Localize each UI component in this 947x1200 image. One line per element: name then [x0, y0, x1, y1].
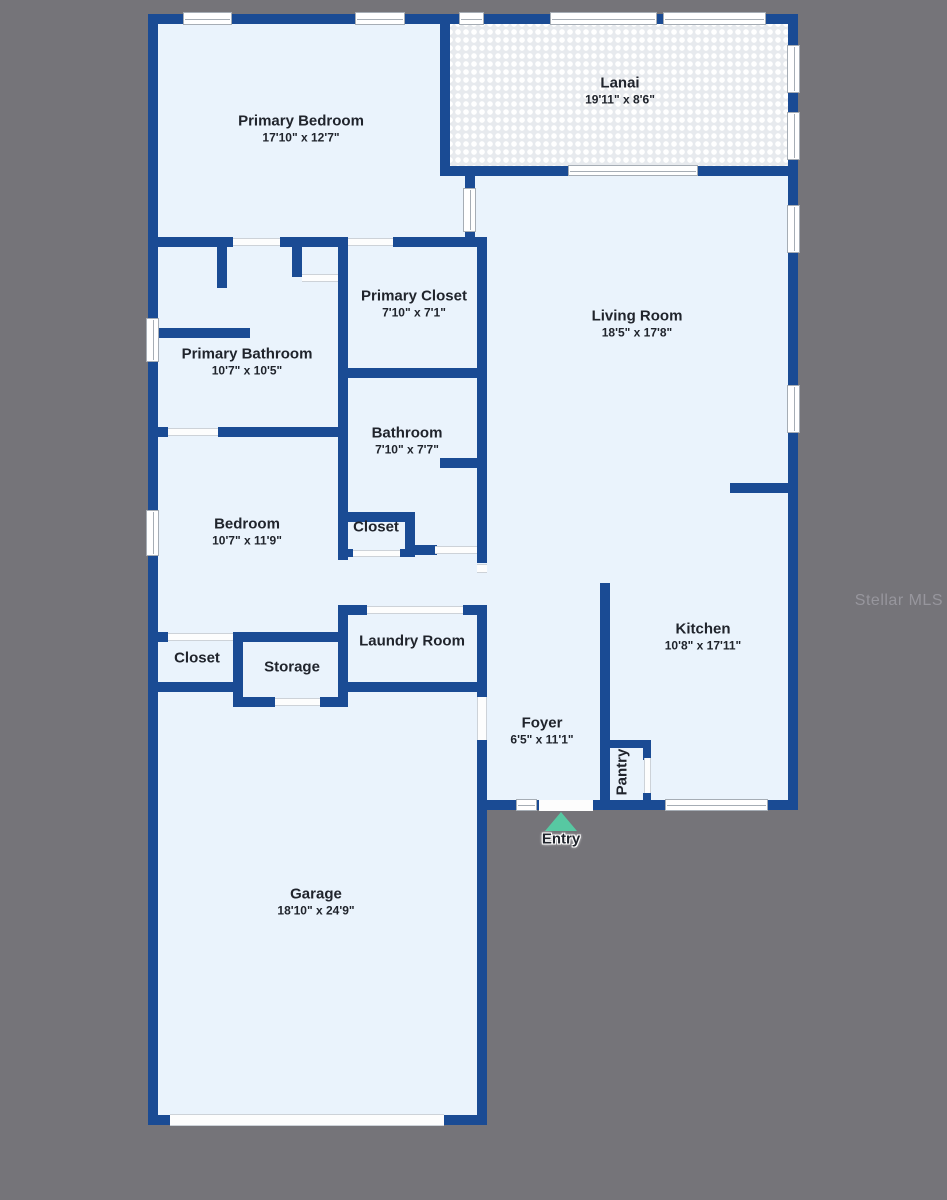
door-opening [367, 606, 463, 614]
wall [148, 632, 168, 642]
wall [338, 368, 487, 378]
room-name: Closet [353, 518, 399, 535]
room-label-storage: Storage [264, 658, 320, 675]
room-label-bedroom: Bedroom 10'7" x 11'9" [212, 515, 282, 548]
wall [148, 682, 233, 692]
door-opening [168, 428, 218, 436]
room-label-pantry: Pantry [613, 749, 630, 796]
room-label-living-room: Living Room 18'5" x 17'8" [592, 307, 683, 340]
door-opening [168, 633, 233, 641]
room-label-primary-bathroom: Primary Bathroom 10'7" x 10'5" [182, 345, 313, 378]
room-name: Foyer [510, 714, 573, 731]
wall [217, 247, 227, 288]
room-label-laundry: Laundry Room [359, 632, 465, 649]
room-label-closet-hall: Closet [174, 649, 220, 666]
window [787, 45, 800, 93]
wall [440, 14, 450, 176]
room-dimensions: 7'10" x 7'1" [361, 307, 467, 321]
room-name: Closet [174, 649, 220, 666]
room-name: Primary Bedroom [238, 112, 364, 129]
room-label-bathroom: Bathroom 7'10" x 7'7" [372, 424, 443, 457]
room-name: Living Room [592, 307, 683, 324]
room-label-lanai: Lanai 19'11" x 8'6" [585, 74, 655, 107]
room-dimensions: 18'5" x 17'8" [592, 327, 683, 341]
door-opening [477, 697, 487, 740]
wall [400, 549, 415, 557]
front-door-opening [539, 800, 593, 811]
wall [600, 740, 651, 748]
door-opening [477, 564, 487, 573]
room-name: Storage [264, 658, 320, 675]
room-name: Primary Closet [361, 287, 467, 304]
room-name: Bathroom [372, 424, 443, 441]
door-opening [302, 274, 338, 282]
wall [233, 697, 275, 707]
wall [696, 166, 798, 176]
garage-door-opening [170, 1114, 444, 1126]
wall [477, 240, 487, 563]
room-label-closet-bath: Closet [353, 518, 399, 535]
wall [440, 458, 487, 468]
wall [148, 237, 233, 247]
wall [440, 166, 570, 176]
room-dimensions: 17'10" x 12'7" [238, 132, 364, 146]
window [463, 188, 476, 232]
window [146, 510, 159, 556]
wall [643, 793, 651, 810]
window [663, 12, 766, 25]
room-label-primary-bedroom: Primary Bedroom 17'10" x 12'7" [238, 112, 364, 145]
window [355, 12, 405, 25]
wall [415, 545, 437, 555]
door-opening [233, 238, 280, 246]
window [146, 318, 159, 362]
window [459, 12, 484, 25]
window [787, 205, 800, 253]
room-dimensions: 10'7" x 10'5" [182, 365, 313, 379]
room-dimensions: 10'7" x 11'9" [212, 535, 282, 549]
window [550, 12, 657, 25]
wall [477, 682, 487, 1125]
window [183, 12, 232, 25]
stellar-mls-watermark: Stellar MLS [855, 592, 943, 610]
room-name: Kitchen [665, 620, 741, 637]
room-dimensions: 19'11" x 8'6" [585, 94, 655, 108]
room-name: Lanai [585, 74, 655, 91]
wall [477, 607, 487, 682]
door-opening [435, 546, 477, 554]
lanai-screen-opening [568, 165, 698, 176]
wall [320, 697, 345, 707]
door-opening [348, 238, 393, 246]
wall [338, 549, 353, 557]
window [665, 799, 768, 811]
wall [463, 605, 487, 615]
wall [600, 583, 610, 810]
wall [345, 682, 487, 692]
room-name: Garage [277, 885, 354, 902]
entry-arrow-icon [545, 812, 577, 831]
wall [148, 14, 158, 1125]
window [516, 799, 537, 811]
wall [233, 632, 345, 642]
window [787, 112, 800, 160]
room-label-garage: Garage 18'10" x 24'9" [277, 885, 354, 918]
room-label-primary-closet: Primary Closet 7'10" x 7'1" [361, 287, 467, 320]
room-name: Primary Bathroom [182, 345, 313, 362]
room-dimensions: 6'5" x 11'1" [510, 734, 573, 748]
wall [292, 247, 302, 277]
wall [465, 230, 475, 247]
wall [148, 328, 250, 338]
door-opening [644, 758, 651, 793]
room-dimensions: 7'10" x 7'7" [372, 444, 443, 458]
floor-plan: Primary Bedroom 17'10" x 12'7" Lanai 19'… [0, 0, 947, 1200]
room-dimensions: 18'10" x 24'9" [277, 905, 354, 919]
door-opening [275, 698, 320, 706]
entry-label: Entry [542, 831, 580, 848]
wall [218, 427, 348, 437]
door-opening [353, 550, 400, 557]
wall [348, 605, 367, 615]
window [787, 385, 800, 433]
room-label-foyer: Foyer 6'5" x 11'1" [510, 714, 573, 747]
wall [730, 483, 798, 493]
room-label-kitchen: Kitchen 10'8" x 17'11" [665, 620, 741, 653]
room-name: Laundry Room [359, 632, 465, 649]
room-name: Bedroom [212, 515, 282, 532]
wall [148, 427, 168, 437]
room-dimensions: 10'8" x 17'11" [665, 640, 741, 654]
room-name: Pantry [613, 749, 630, 796]
